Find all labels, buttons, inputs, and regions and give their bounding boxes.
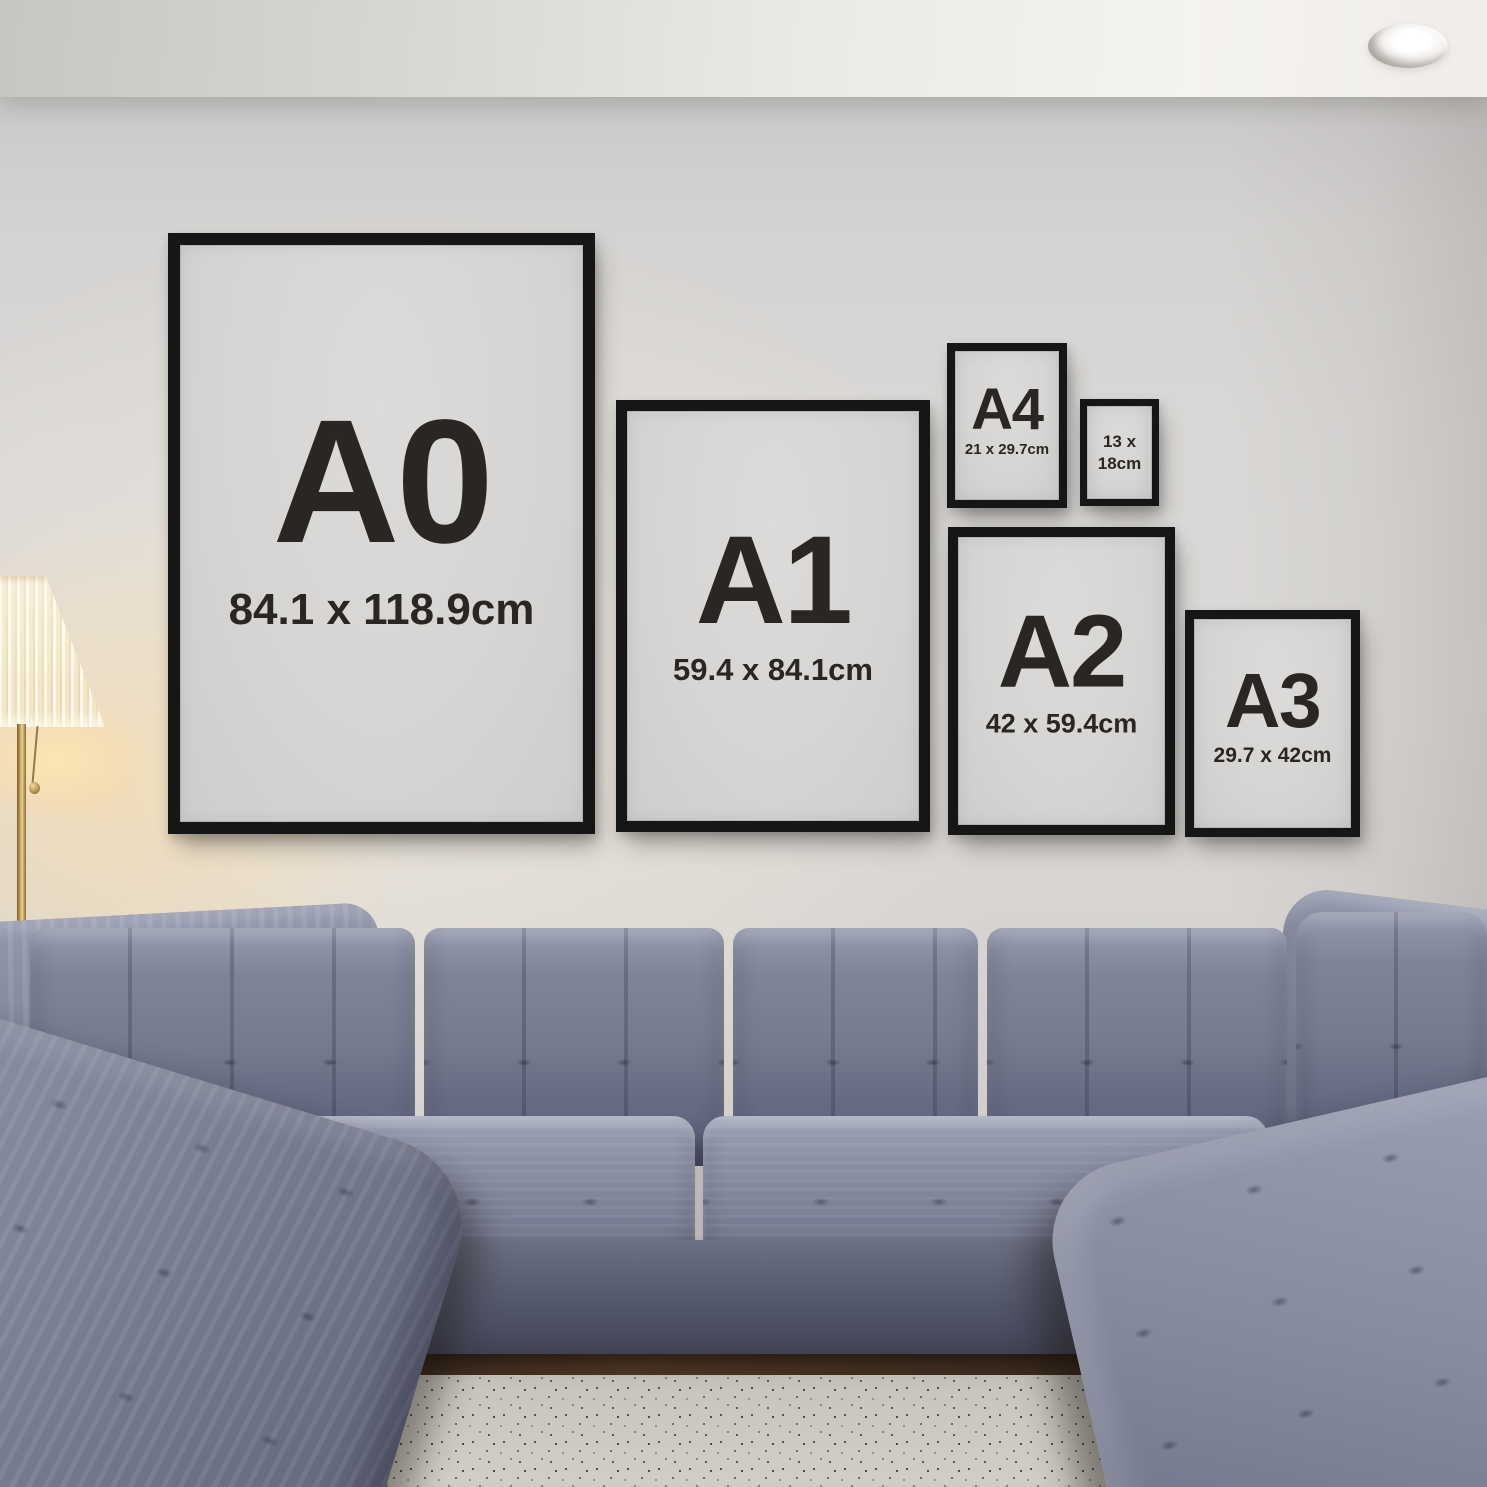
sectional-sofa bbox=[0, 0, 1487, 1487]
living-room-scene: A0 84.1 x 118.9cm A1 59.4 x 84.1cm A4 21… bbox=[0, 0, 1487, 1487]
